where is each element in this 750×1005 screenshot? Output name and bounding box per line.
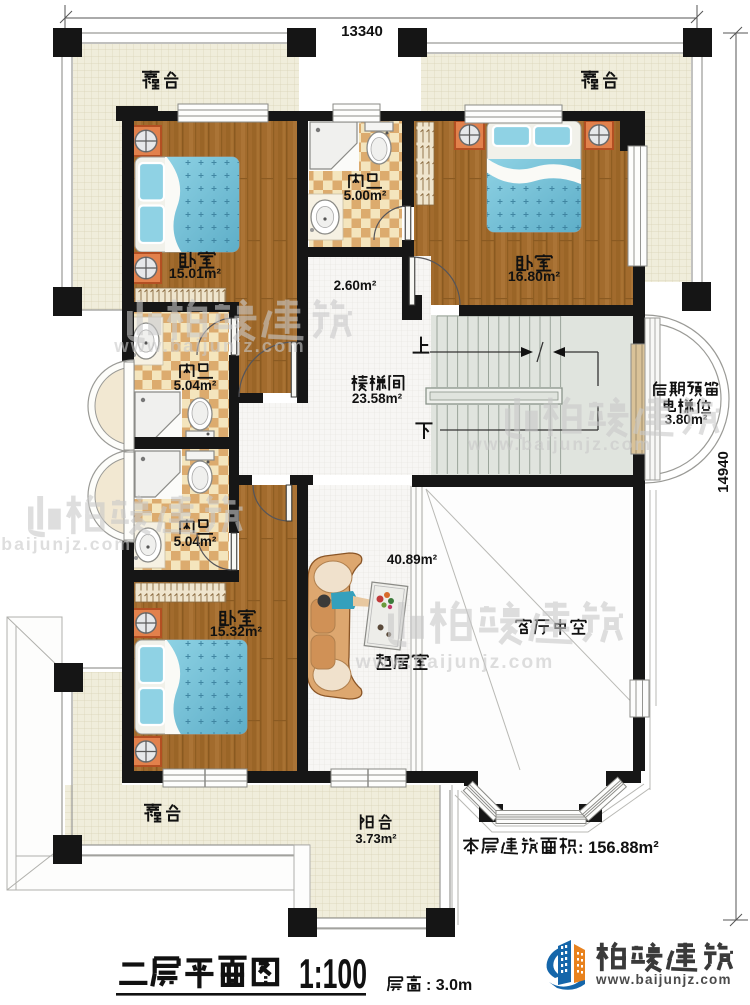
svg-text:www.baijunjz.com: www.baijunjz.com — [467, 434, 652, 454]
svg-text:3.73m²: 3.73m² — [355, 831, 397, 846]
svg-text:5.00m²: 5.00m² — [344, 188, 387, 203]
svg-text:40.89m²: 40.89m² — [387, 552, 438, 567]
svg-text:2.60m²: 2.60m² — [334, 278, 377, 293]
svg-text:www.baijunjz.com: www.baijunjz.com — [0, 534, 132, 554]
svg-text:www.baijunjz.com: www.baijunjz.com — [355, 652, 555, 673]
svg-text:1:100: 1:100 — [299, 950, 367, 997]
svg-text:www.baijunjz.com: www.baijunjz.com — [595, 972, 732, 987]
svg-text:13340: 13340 — [341, 23, 383, 40]
svg-text:15.01m²: 15.01m² — [169, 265, 221, 281]
svg-text:5.04m²: 5.04m² — [174, 534, 217, 549]
svg-text:: 3.0m: : 3.0m — [426, 977, 472, 994]
svg-text:23.58m²: 23.58m² — [352, 391, 403, 406]
svg-text:www.baijunjz.com: www.baijunjz.com — [113, 335, 305, 356]
svg-text:14940: 14940 — [715, 451, 732, 493]
svg-text:: 156.88m²: : 156.88m² — [578, 839, 659, 857]
svg-text:5.04m²: 5.04m² — [174, 378, 217, 393]
svg-text:16.80m²: 16.80m² — [508, 268, 560, 284]
svg-text:15.32m²: 15.32m² — [210, 623, 262, 639]
